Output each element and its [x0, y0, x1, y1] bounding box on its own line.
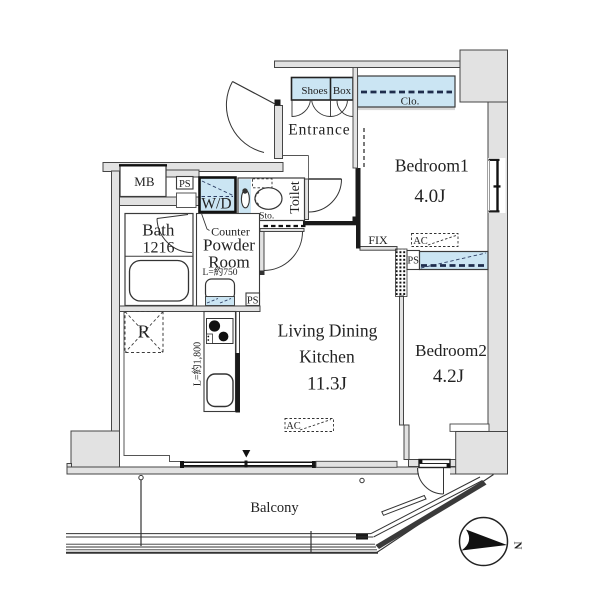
svg-text:N: N: [512, 542, 524, 550]
svg-text:4.2J: 4.2J: [433, 366, 464, 387]
svg-text:Living Dining: Living Dining: [278, 321, 378, 341]
svg-text:Clo.: Clo.: [401, 96, 420, 108]
svg-text:1216: 1216: [143, 240, 175, 257]
svg-text:Balcony: Balcony: [250, 500, 299, 516]
svg-text:Bath: Bath: [142, 220, 175, 239]
svg-text:L=約750: L=約750: [203, 266, 238, 278]
svg-text:MB: MB: [134, 174, 155, 189]
svg-text:Kitchen: Kitchen: [299, 347, 355, 367]
svg-text:W/D: W/D: [201, 196, 231, 213]
svg-text:R: R: [138, 322, 150, 342]
svg-text:PS: PS: [179, 179, 191, 190]
svg-text:AC: AC: [413, 236, 428, 247]
svg-text:FIX: FIX: [368, 233, 388, 247]
svg-text:Shoes: Shoes: [301, 85, 327, 97]
svg-text:PS: PS: [247, 296, 259, 307]
svg-text:AC: AC: [286, 421, 301, 432]
svg-text:Bedroom1: Bedroom1: [395, 156, 469, 176]
svg-text:Bedroom2: Bedroom2: [415, 341, 487, 360]
svg-text:Toilet: Toilet: [288, 181, 303, 214]
svg-text:4.0J: 4.0J: [414, 186, 445, 207]
svg-text:PS: PS: [407, 256, 419, 267]
svg-text:Entrance: Entrance: [288, 122, 350, 139]
svg-text:Box: Box: [333, 85, 352, 97]
svg-text:11.3J: 11.3J: [307, 374, 347, 395]
svg-text:L=約1,800: L=約1,800: [191, 342, 204, 386]
